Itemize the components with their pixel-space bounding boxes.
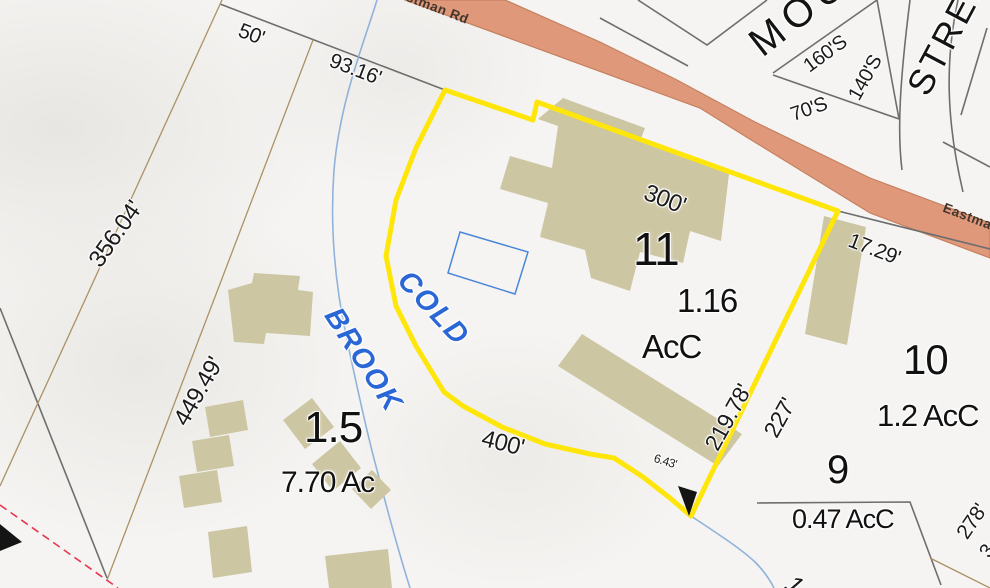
building-parcel11-main	[500, 98, 729, 291]
parcel-10-area: 1.2 AcC	[877, 400, 979, 431]
building-row-1	[205, 400, 248, 437]
parcel-9-area: 0.47 AcC	[792, 506, 894, 533]
building-row-3	[179, 470, 222, 508]
proposed-building-outline	[448, 232, 528, 294]
building-row-2	[192, 435, 234, 472]
parcel-1-5-id: 1.5	[304, 406, 362, 450]
map-geometry	[0, 0, 990, 588]
line-278	[930, 558, 990, 588]
parcel-11-area-unit: AcC	[642, 330, 701, 363]
right-parcel-line-2	[943, 142, 990, 167]
building-row-4	[208, 526, 252, 578]
dashed-survey-line	[0, 505, 118, 588]
parcel-9-id: 9	[827, 450, 848, 490]
building-bottom-partial	[325, 549, 392, 588]
parcel-1-5-area: 7.70 Ac	[281, 468, 374, 498]
edge-arrow-southwest	[0, 520, 22, 553]
parcel-11-id: 11	[633, 226, 679, 272]
building-footprints	[179, 98, 866, 588]
parcel-10-id: 10	[903, 339, 948, 381]
brook-lower	[691, 516, 774, 588]
building-parcel15-house	[228, 273, 313, 344]
parcel-11-area: 1.16	[677, 284, 737, 317]
parcel-map-canvas[interactable]: Eastman Rd Eastman Rd MOUNTAIN STREET CO…	[0, 0, 990, 588]
